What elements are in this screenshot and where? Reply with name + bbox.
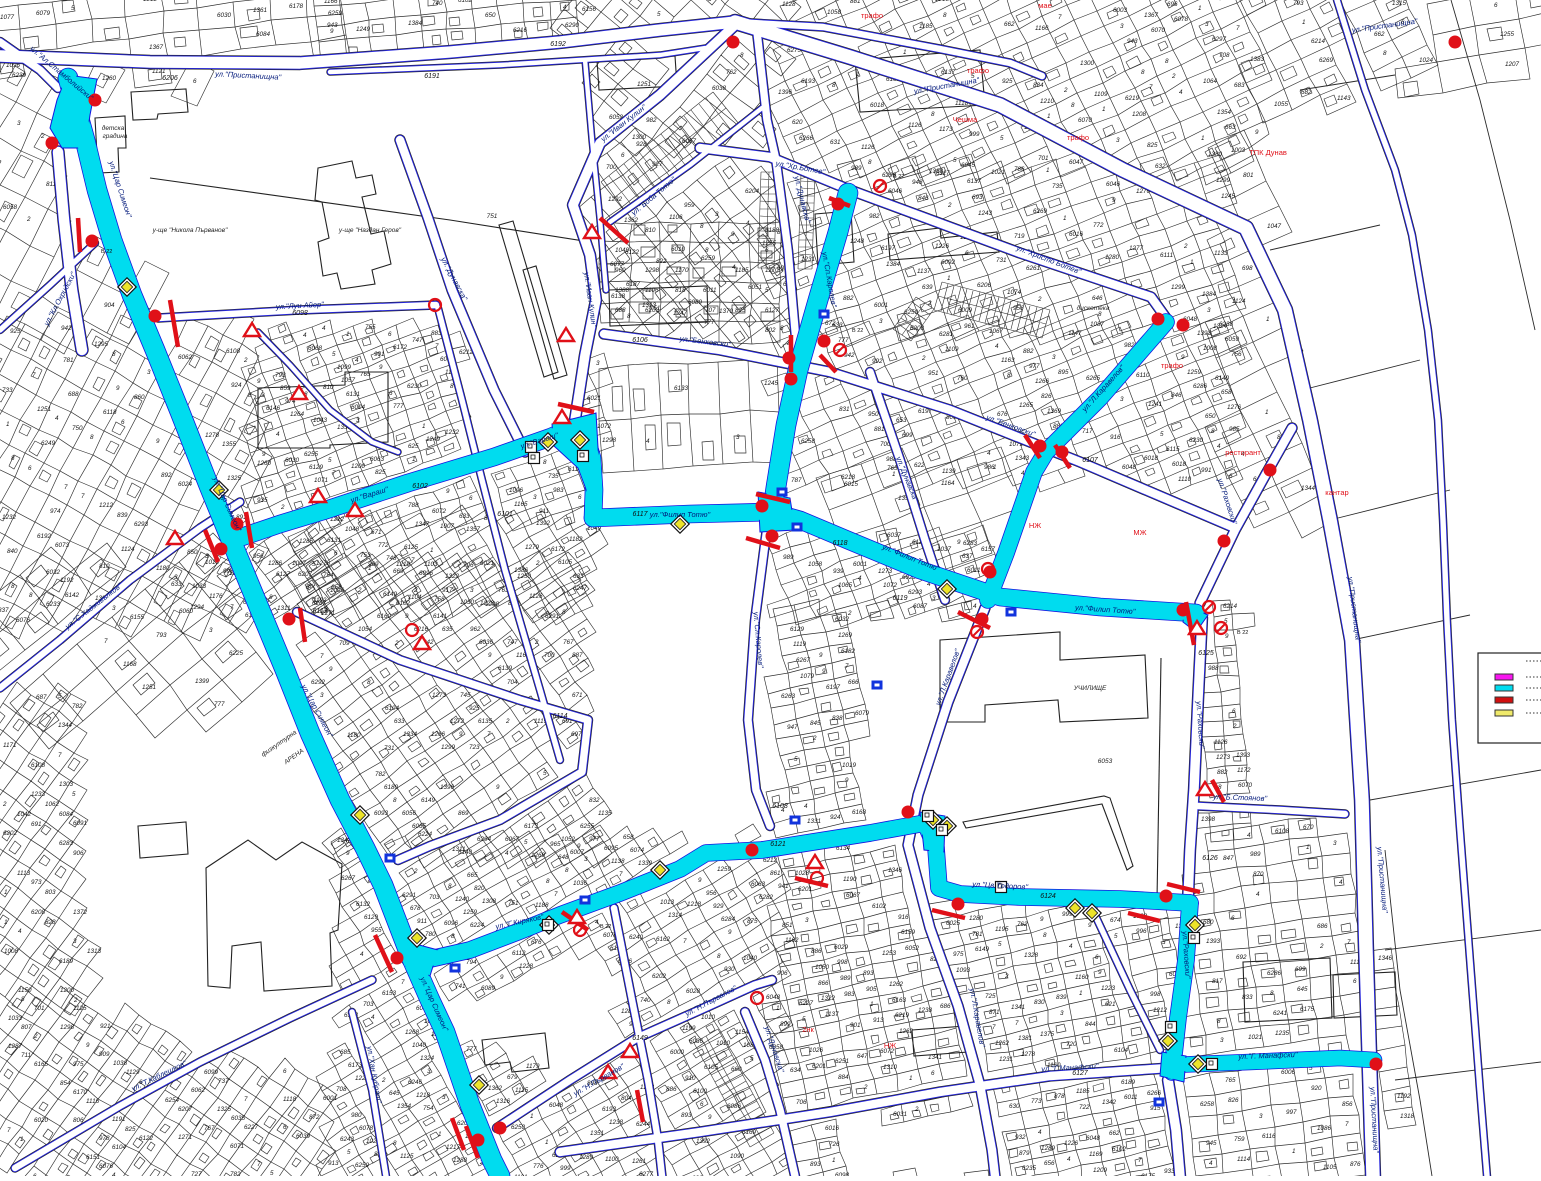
svg-text:1143: 1143: [1337, 95, 1351, 102]
svg-text:691: 691: [31, 821, 42, 828]
svg-text:1162: 1162: [785, 937, 799, 944]
svg-text:1166: 1166: [1035, 25, 1049, 32]
svg-text:1318: 1318: [1400, 1113, 1415, 1120]
svg-text:6121: 6121: [770, 841, 786, 848]
svg-text:8: 8: [931, 111, 935, 118]
svg-text:1093: 1093: [956, 967, 971, 974]
svg-text:градина: градина: [103, 132, 128, 140]
svg-text:B 22: B 22: [600, 924, 611, 930]
svg-text:986: 986: [984, 464, 995, 471]
svg-text:1280: 1280: [969, 915, 984, 922]
svg-text:9: 9: [86, 1042, 90, 1049]
svg-text:839: 839: [117, 512, 128, 519]
svg-text:1253: 1253: [882, 950, 897, 957]
svg-text:1028: 1028: [795, 870, 810, 877]
svg-text:840: 840: [7, 548, 18, 555]
svg-text:1: 1: [1198, 5, 1202, 12]
svg-text:1126: 1126: [529, 593, 543, 600]
svg-text:3: 3: [1220, 1037, 1224, 1044]
svg-text:1074: 1074: [1007, 289, 1022, 296]
svg-text:1272: 1272: [450, 718, 465, 725]
svg-text:1388: 1388: [615, 287, 630, 294]
svg-text:5: 5: [524, 839, 528, 846]
svg-text:6115: 6115: [1166, 446, 1180, 453]
svg-text:831: 831: [839, 406, 850, 413]
svg-text:6052: 6052: [905, 945, 920, 952]
svg-text:1135: 1135: [598, 810, 612, 817]
svg-text:5: 5: [998, 941, 1002, 948]
svg-text:6084: 6084: [256, 31, 271, 38]
svg-text:985: 985: [1229, 426, 1240, 433]
svg-text:706: 706: [463, 562, 474, 569]
svg-text:826: 826: [1041, 393, 1052, 400]
svg-text:6102: 6102: [1112, 1146, 1127, 1153]
svg-text:1354: 1354: [397, 1103, 412, 1110]
svg-text:1243: 1243: [978, 210, 993, 217]
svg-text:755: 755: [365, 324, 376, 331]
svg-text:669: 669: [393, 568, 404, 575]
svg-text:1188: 1188: [535, 902, 549, 909]
svg-text:6126: 6126: [1202, 855, 1218, 862]
svg-text:6113: 6113: [312, 608, 327, 615]
svg-text:793: 793: [275, 372, 286, 379]
svg-text:8: 8: [543, 459, 547, 466]
svg-text:6259: 6259: [355, 1162, 370, 1169]
svg-text:6193: 6193: [602, 1106, 617, 1113]
svg-text:7: 7: [1058, 14, 1062, 21]
svg-text:6227: 6227: [799, 1000, 814, 1007]
svg-text:7: 7: [554, 891, 558, 898]
svg-text:6263: 6263: [781, 693, 796, 700]
svg-text:6018: 6018: [870, 102, 885, 109]
svg-text:1185: 1185: [919, 23, 933, 30]
svg-text:5: 5: [328, 457, 332, 464]
svg-text:1342: 1342: [1102, 1099, 1117, 1106]
svg-text:6031: 6031: [893, 1111, 907, 1118]
svg-text:1: 1: [4, 889, 8, 896]
svg-text:1279: 1279: [525, 544, 540, 551]
svg-text:6151: 6151: [86, 1154, 100, 1161]
svg-text:6: 6: [700, 1101, 704, 1108]
svg-text:1185: 1185: [1076, 1088, 1090, 1095]
svg-text:726: 726: [829, 1141, 840, 1148]
svg-text:6016: 6016: [1069, 231, 1084, 238]
svg-text:6112: 6112: [512, 950, 526, 957]
svg-text:8: 8: [1141, 69, 1145, 76]
svg-text:6235: 6235: [1022, 1165, 1037, 1172]
svg-text:6283: 6283: [59, 840, 74, 847]
svg-text:6165: 6165: [34, 1061, 49, 1068]
svg-text:8: 8: [112, 351, 116, 358]
svg-text:у-ще "Никола Първанов": у-ще "Никола Първанов": [152, 227, 228, 234]
svg-text:6108: 6108: [226, 348, 241, 355]
svg-text:8: 8: [11, 583, 15, 590]
svg-text:1176: 1176: [209, 593, 223, 600]
svg-text:6125: 6125: [1198, 650, 1214, 657]
svg-text:8: 8: [1217, 1018, 1221, 1025]
svg-text:1077: 1077: [0, 14, 15, 21]
svg-text:998: 998: [1150, 991, 1161, 998]
svg-text:2: 2: [505, 718, 510, 725]
svg-text:6108: 6108: [772, 803, 788, 810]
svg-text:1384: 1384: [886, 261, 901, 268]
svg-text:1240: 1240: [455, 896, 470, 903]
svg-text:1199: 1199: [682, 1025, 696, 1032]
svg-text:3: 3: [596, 360, 600, 367]
svg-text:1: 1: [1265, 409, 1269, 416]
svg-text:6197: 6197: [881, 245, 896, 252]
svg-text:6194: 6194: [385, 705, 400, 712]
svg-text:1126: 1126: [1214, 739, 1228, 746]
svg-text:639: 639: [922, 284, 933, 291]
svg-text:6254: 6254: [165, 1097, 180, 1104]
svg-text:6016: 6016: [825, 1125, 840, 1132]
svg-text:3: 3: [147, 369, 151, 376]
svg-text:6074: 6074: [630, 847, 645, 854]
svg-text:7: 7: [32, 372, 36, 379]
svg-text:916: 916: [898, 914, 909, 921]
svg-text:704: 704: [507, 679, 518, 686]
svg-text:6193: 6193: [801, 78, 816, 85]
svg-text:6025: 6025: [946, 920, 961, 927]
svg-text:620: 620: [792, 119, 803, 126]
svg-text:1055: 1055: [1274, 101, 1289, 108]
svg-text:741: 741: [455, 983, 466, 990]
svg-text:2: 2: [413, 587, 418, 594]
svg-text:786: 786: [1014, 166, 1025, 173]
svg-text:622: 622: [914, 462, 925, 469]
svg-text:6286: 6286: [1267, 970, 1282, 977]
svg-text:6073: 6073: [55, 542, 70, 549]
svg-text:6159: 6159: [901, 929, 916, 936]
svg-text:631: 631: [830, 139, 841, 146]
svg-text:6101: 6101: [497, 511, 513, 518]
svg-text:1228: 1228: [519, 963, 534, 970]
svg-text:767: 767: [563, 639, 574, 646]
svg-text:1067: 1067: [989, 328, 1004, 335]
svg-text:1003: 1003: [1231, 147, 1246, 154]
svg-text:1245: 1245: [764, 380, 779, 387]
svg-text:1259: 1259: [1187, 369, 1202, 376]
svg-text:978: 978: [99, 1135, 110, 1142]
svg-text:6189: 6189: [1121, 1079, 1136, 1086]
svg-text:1249: 1249: [356, 26, 371, 33]
svg-text:1223: 1223: [1101, 985, 1116, 992]
svg-text:870: 870: [1253, 871, 1264, 878]
svg-text:909: 909: [99, 1051, 110, 1058]
svg-text:804: 804: [621, 1095, 632, 1102]
svg-text:3: 3: [356, 417, 360, 424]
svg-text:921: 921: [100, 1023, 111, 1030]
svg-text:765: 765: [887, 465, 898, 472]
svg-text:3: 3: [112, 605, 116, 612]
svg-text:916: 916: [1110, 434, 1121, 441]
svg-text:666: 666: [848, 679, 859, 686]
svg-text:2: 2: [921, 355, 926, 362]
svg-text:1024: 1024: [1419, 57, 1434, 64]
svg-text:6238: 6238: [1219, 321, 1234, 328]
svg-text:1038: 1038: [113, 1060, 128, 1067]
svg-text:9: 9: [346, 850, 350, 857]
svg-text:859: 859: [280, 385, 291, 392]
svg-text:6105: 6105: [558, 559, 573, 566]
svg-text:6135: 6135: [478, 718, 493, 725]
svg-text:6102: 6102: [458, 0, 473, 4]
svg-text:1207: 1207: [1505, 61, 1520, 68]
svg-text:645: 645: [1297, 986, 1308, 993]
svg-text:6250: 6250: [511, 1124, 526, 1131]
svg-text:6: 6: [1229, 473, 1233, 480]
svg-text:1298: 1298: [485, 601, 500, 608]
svg-text:4: 4: [112, 1172, 116, 1176]
svg-text:731: 731: [996, 257, 1007, 264]
svg-text:7: 7: [992, 1024, 996, 1031]
svg-text:1: 1: [1292, 1148, 1296, 1155]
svg-text:6239: 6239: [12, 72, 27, 79]
svg-text:1269: 1269: [838, 632, 853, 639]
svg-text:686: 686: [1317, 923, 1328, 930]
svg-text:трафо: трафо: [1161, 361, 1183, 370]
svg-text:6140: 6140: [1215, 375, 1230, 382]
svg-text:1191: 1191: [112, 1116, 126, 1123]
svg-text:633: 633: [171, 581, 182, 588]
svg-text:6146: 6146: [266, 405, 281, 412]
svg-text:9: 9: [819, 652, 823, 659]
svg-text:881: 881: [874, 426, 885, 433]
svg-text:1114: 1114: [1237, 1156, 1251, 1163]
svg-text:6244: 6244: [636, 1121, 651, 1128]
svg-text:1288: 1288: [453, 1157, 468, 1164]
svg-text:1037: 1037: [937, 546, 952, 553]
svg-text:1311: 1311: [452, 846, 466, 853]
svg-text:6076: 6076: [16, 617, 31, 624]
svg-text:8: 8: [717, 953, 721, 960]
svg-text:962: 962: [470, 626, 481, 633]
svg-text:2: 2: [26, 216, 31, 223]
svg-text:7: 7: [619, 871, 623, 878]
svg-text:7: 7: [1236, 25, 1240, 32]
svg-text:1086: 1086: [1317, 1125, 1332, 1132]
svg-text:871: 871: [989, 1009, 1000, 1016]
svg-text:2: 2: [1004, 973, 1009, 980]
svg-text:6062: 6062: [191, 1087, 206, 1094]
svg-text:1042: 1042: [17, 811, 32, 818]
svg-text:656: 656: [1044, 1160, 1055, 1167]
svg-text:8: 8: [248, 392, 252, 399]
svg-text:1: 1: [6, 421, 10, 428]
svg-text:1128: 1128: [782, 1, 796, 8]
svg-text:1341: 1341: [1011, 1004, 1025, 1011]
svg-text:6021: 6021: [480, 560, 494, 567]
svg-text:1300: 1300: [632, 134, 647, 141]
svg-text:1347: 1347: [415, 521, 430, 528]
svg-text:6219: 6219: [895, 1012, 910, 1019]
svg-text:6068: 6068: [308, 345, 323, 352]
svg-text:4: 4: [595, 919, 599, 926]
svg-text:2: 2: [863, 1084, 868, 1091]
svg-text:4: 4: [746, 220, 750, 227]
svg-text:1249: 1249: [426, 436, 441, 443]
svg-text:678: 678: [410, 905, 421, 912]
svg-text:8: 8: [780, 325, 784, 332]
svg-text:1: 1: [545, 1139, 549, 1146]
svg-text:1192: 1192: [313, 597, 327, 604]
svg-text:625: 625: [408, 443, 419, 450]
svg-text:1192: 1192: [1397, 1093, 1411, 1100]
svg-text:6292: 6292: [311, 679, 326, 686]
svg-text:1212: 1212: [1153, 1007, 1168, 1014]
svg-text:6003: 6003: [1113, 7, 1128, 14]
svg-text:5: 5: [543, 770, 547, 777]
svg-text:1071: 1071: [314, 477, 328, 484]
svg-text:1054: 1054: [358, 626, 373, 633]
svg-text:1266: 1266: [431, 731, 446, 738]
svg-text:633: 633: [573, 573, 584, 580]
svg-text:1180: 1180: [347, 732, 361, 739]
svg-text:6038: 6038: [712, 85, 727, 92]
svg-text:1392: 1392: [696, 1138, 711, 1145]
svg-text:1106: 1106: [669, 214, 683, 221]
svg-text:992: 992: [872, 358, 883, 365]
svg-text:1: 1: [947, 275, 951, 282]
svg-text:6: 6: [1494, 2, 1498, 9]
svg-text:999: 999: [969, 131, 980, 138]
svg-text:6076: 6076: [99, 1163, 114, 1170]
svg-text:765: 765: [1225, 1077, 1236, 1084]
svg-text:6216: 6216: [513, 27, 528, 34]
svg-text:5: 5: [657, 11, 661, 18]
svg-text:1210: 1210: [1040, 98, 1055, 105]
svg-text:6102: 6102: [872, 903, 887, 910]
svg-text:6024: 6024: [178, 481, 193, 488]
svg-text:НЖ: НЖ: [1029, 521, 1041, 530]
svg-text:4: 4: [804, 803, 808, 810]
svg-text:6139: 6139: [498, 665, 513, 672]
svg-text:6206: 6206: [162, 75, 178, 82]
svg-text:6: 6: [1095, 954, 1099, 961]
svg-text:6149: 6149: [421, 797, 436, 804]
svg-text:8: 8: [565, 867, 569, 874]
svg-text:6108: 6108: [31, 762, 46, 769]
svg-text:911: 911: [417, 918, 427, 925]
svg-text:1235: 1235: [1275, 1030, 1290, 1037]
svg-text:6114: 6114: [552, 713, 567, 720]
svg-text:8: 8: [367, 679, 371, 686]
svg-text:6131: 6131: [327, 537, 341, 544]
svg-text:4: 4: [995, 343, 999, 350]
svg-text:1334: 1334: [403, 731, 418, 738]
svg-text:1125: 1125: [73, 1005, 87, 1012]
svg-text:1: 1: [346, 331, 350, 338]
svg-text:861: 861: [770, 870, 781, 877]
svg-text:B 22: B 22: [1237, 630, 1248, 636]
svg-text:621: 621: [1105, 1001, 1116, 1008]
svg-text:2: 2: [381, 1077, 386, 1084]
svg-text:2: 2: [1171, 73, 1176, 80]
svg-text:1277: 1277: [1129, 245, 1144, 252]
svg-text:634: 634: [790, 1067, 801, 1074]
svg-text:658: 658: [1221, 389, 1232, 396]
svg-text:895: 895: [1058, 369, 1069, 376]
svg-text:1261: 1261: [632, 1158, 646, 1165]
svg-text:807: 807: [21, 1024, 32, 1031]
svg-text:1026: 1026: [809, 1047, 824, 1054]
svg-text:3: 3: [584, 856, 588, 863]
svg-text:6282: 6282: [759, 894, 774, 901]
svg-text:6084: 6084: [59, 811, 74, 818]
svg-text:8: 8: [546, 878, 550, 885]
svg-text:5: 5: [953, 157, 957, 164]
svg-text:6020: 6020: [34, 1117, 49, 1124]
svg-text:1362: 1362: [488, 1085, 503, 1092]
svg-text:1096: 1096: [509, 487, 524, 494]
svg-text:7: 7: [58, 752, 62, 759]
svg-text:6070: 6070: [1238, 782, 1253, 789]
svg-text:1289: 1289: [1041, 1145, 1056, 1152]
svg-text:6089: 6089: [481, 985, 496, 992]
svg-text:1298: 1298: [645, 267, 660, 274]
svg-text:1021: 1021: [1248, 1034, 1262, 1041]
svg-text:8: 8: [943, 12, 947, 19]
svg-text:708: 708: [1219, 52, 1230, 59]
svg-text:6153: 6153: [382, 990, 397, 997]
svg-text:трафо: трафо: [861, 11, 883, 20]
svg-text:6078: 6078: [1174, 16, 1189, 23]
svg-text:932: 932: [1015, 1134, 1026, 1141]
svg-text:875: 875: [747, 918, 758, 925]
svg-text:1265: 1265: [1019, 402, 1034, 409]
svg-text:7: 7: [1347, 939, 1351, 946]
svg-text:6224: 6224: [470, 922, 485, 929]
svg-text:4: 4: [303, 332, 307, 339]
svg-text:4: 4: [1247, 832, 1251, 839]
svg-text:6284: 6284: [721, 916, 736, 923]
svg-text:927: 927: [652, 161, 663, 168]
svg-text:6079: 6079: [855, 710, 870, 717]
svg-text:886: 886: [666, 1086, 677, 1093]
svg-text:973: 973: [31, 879, 42, 886]
svg-text:9: 9: [459, 731, 463, 738]
svg-text:845: 845: [810, 720, 821, 727]
svg-text:717: 717: [1082, 428, 1093, 435]
svg-text:2: 2: [357, 587, 362, 594]
svg-text:956: 956: [706, 890, 717, 897]
svg-text:9: 9: [488, 652, 492, 659]
svg-text:6224: 6224: [418, 831, 433, 838]
svg-text:1313: 1313: [87, 948, 102, 955]
svg-text:882: 882: [843, 295, 854, 302]
svg-text:1238: 1238: [609, 1119, 624, 1126]
svg-text:6: 6: [1353, 978, 1357, 985]
svg-text:1260: 1260: [102, 75, 117, 82]
svg-text:856: 856: [1342, 1101, 1353, 1108]
svg-text:9: 9: [156, 438, 160, 445]
svg-text:941: 941: [778, 883, 789, 890]
svg-text:2: 2: [535, 560, 540, 567]
svg-text:5: 5: [794, 756, 798, 763]
svg-text:1322: 1322: [445, 573, 460, 580]
svg-text:1276: 1276: [1227, 404, 1242, 411]
svg-text:6067: 6067: [846, 892, 861, 899]
svg-text:983: 983: [844, 991, 855, 998]
svg-text:1100: 1100: [605, 1156, 619, 1163]
svg-text:6107: 6107: [1082, 457, 1099, 464]
svg-text:733: 733: [2, 387, 13, 394]
svg-text:1099: 1099: [337, 364, 352, 371]
svg-text:9: 9: [500, 974, 504, 981]
svg-text:2: 2: [280, 504, 285, 511]
svg-text:8: 8: [90, 434, 94, 441]
